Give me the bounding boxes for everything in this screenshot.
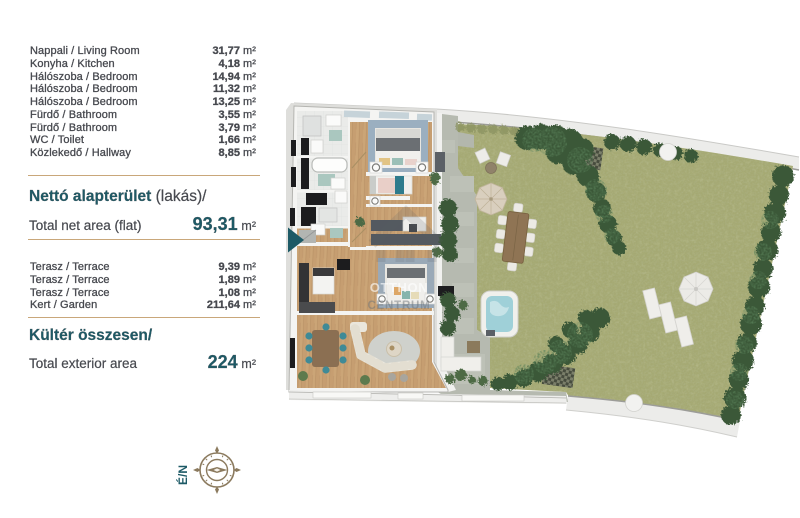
svg-text:CENTRUM: CENTRUM: [367, 300, 430, 312]
svg-text:OTTHON: OTTHON: [370, 280, 428, 295]
